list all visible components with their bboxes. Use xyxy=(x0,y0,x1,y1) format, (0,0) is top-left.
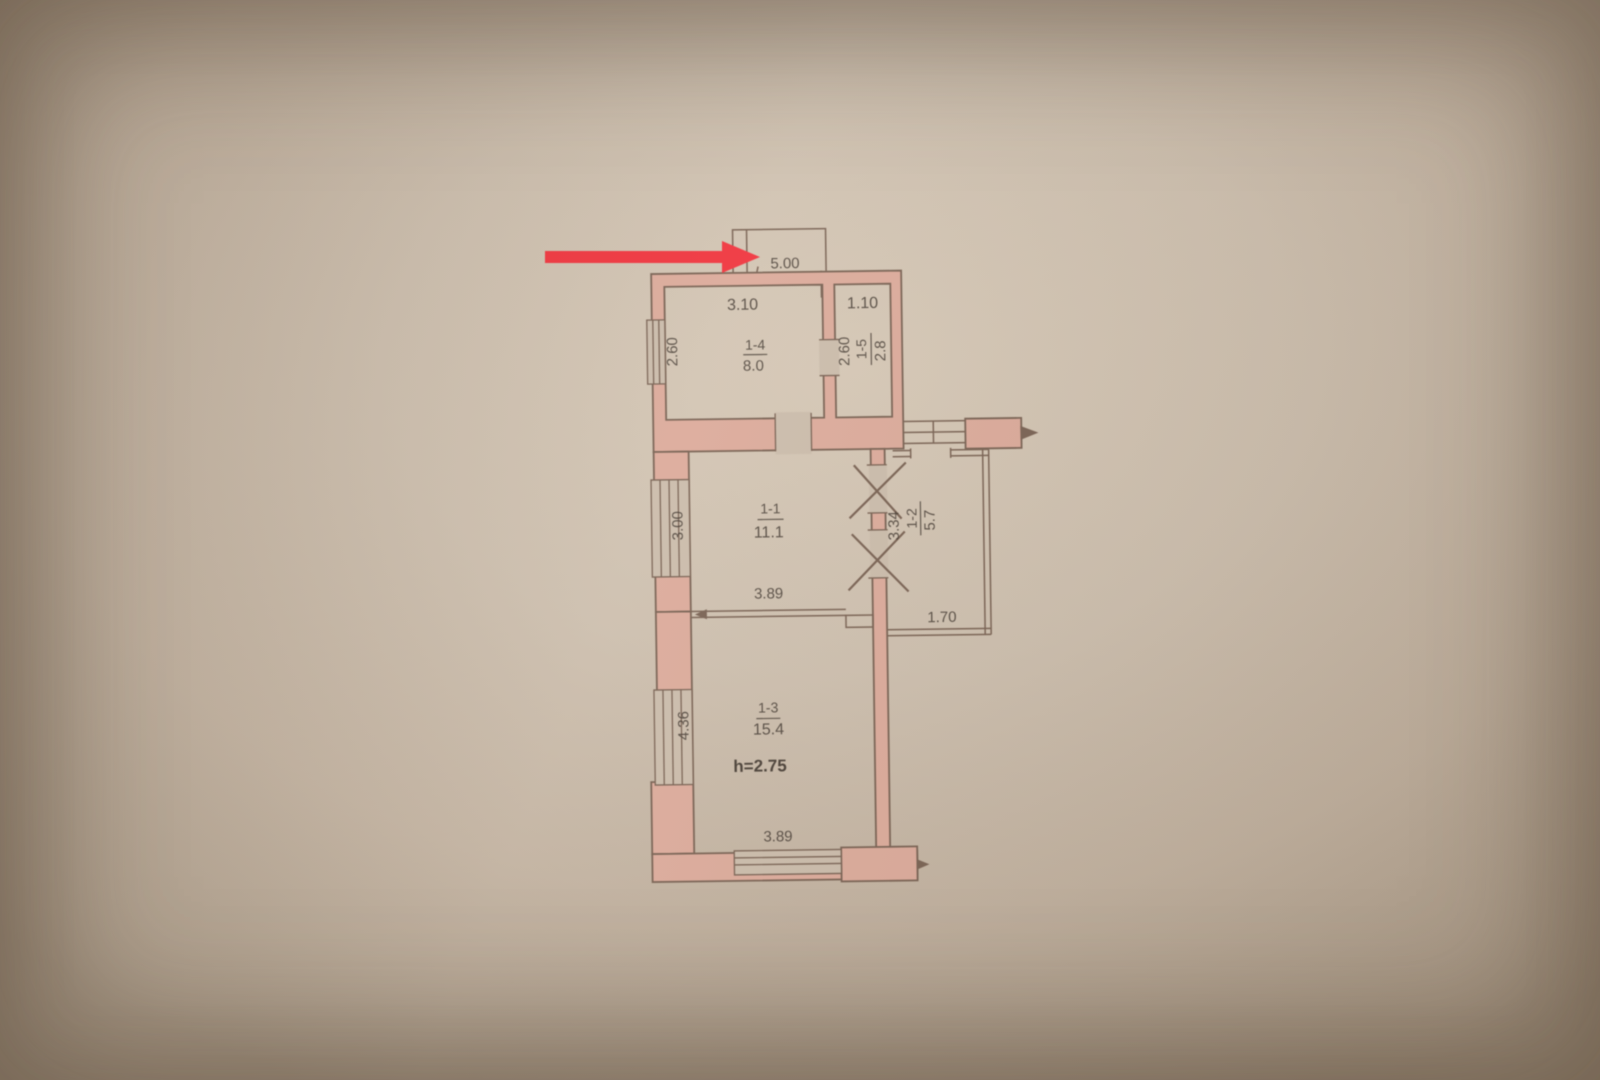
room-1-1-area: 11.1 xyxy=(754,524,784,541)
entrance-arrow-icon xyxy=(1020,426,1038,440)
room-1-3-width-label: 3.89 xyxy=(763,828,792,845)
red-annotation-arrow-icon xyxy=(545,241,760,273)
room-1-1-depth-label: 3.00 xyxy=(669,511,686,540)
floor-plan: 5.00 3.10 1.10 2.60 1-4 8.0 2.60 1-5 2.8… xyxy=(644,226,1045,884)
room-1-3-area: 15.4 xyxy=(753,721,784,738)
balcony-dim-label: 5.00 xyxy=(770,255,799,272)
plan-labels: 5.00 3.10 1.10 2.60 1-4 8.0 2.60 1-5 2.8… xyxy=(663,253,960,847)
window-bottom-1-3 xyxy=(734,849,841,874)
entrance-steps xyxy=(903,421,965,444)
room-1-2-number: 1-2 xyxy=(903,508,919,529)
room-1-2-width-label: 1.70 xyxy=(927,609,956,626)
floor-plan-drawing: 5.00 3.10 1.10 2.60 1-4 8.0 2.60 1-5 2.8… xyxy=(0,0,1600,1080)
room-1-4-area: 8.0 xyxy=(743,357,764,374)
room-1-5-depth-label: 2.60 xyxy=(836,337,853,366)
room-1-3-number: 1-3 xyxy=(758,699,779,715)
door-jamb xyxy=(775,413,776,451)
room-1-4-depth-label: 2.60 xyxy=(664,337,681,366)
room-1-5-area: 2.8 xyxy=(872,340,889,361)
room-1-1-number: 1-1 xyxy=(760,500,781,516)
room-1-5-number: 1-5 xyxy=(853,339,869,360)
entrance-wall-block xyxy=(965,418,1021,449)
room-1-4-width-label: 3.10 xyxy=(727,297,758,314)
ceiling-height-label: h=2.75 xyxy=(733,756,787,776)
door-gap-1-4 xyxy=(775,412,812,454)
room-1-1-width-label: 3.89 xyxy=(754,585,783,602)
door-jamb xyxy=(811,413,812,451)
room-1-3-depth-label: 4.36 xyxy=(675,711,692,740)
room-1-2-depth-label: 3.34 xyxy=(885,511,902,540)
bottom-right-wall-block xyxy=(841,846,917,881)
window-left-1-4 xyxy=(647,320,666,384)
room-1-2-area: 5.7 xyxy=(921,510,938,531)
scanned-floor-plan-photo: 5.00 3.10 1.10 2.60 1-4 8.0 2.60 1-5 2.8… xyxy=(0,0,1600,1080)
room-1-5-width-label: 1.10 xyxy=(847,295,878,312)
room-1-4-number: 1-4 xyxy=(745,336,766,352)
bottom-right-tick xyxy=(917,859,929,869)
